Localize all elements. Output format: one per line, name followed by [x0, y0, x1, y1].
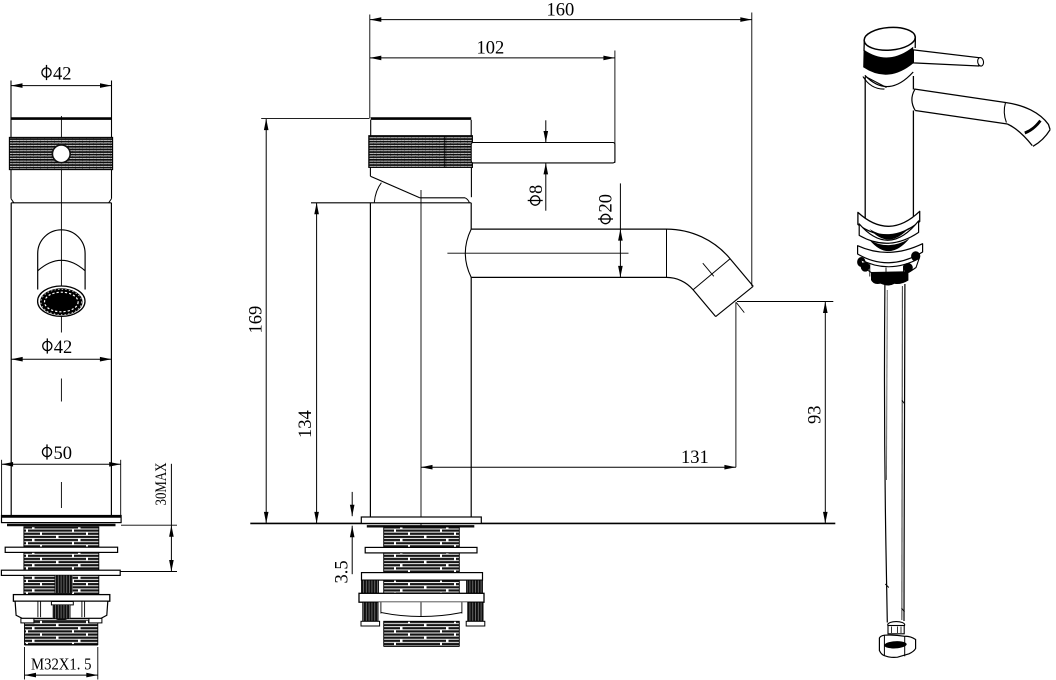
svg-text:102: 102 [477, 39, 505, 59]
svg-text:134: 134 [296, 410, 316, 438]
svg-text:160: 160 [547, 0, 575, 20]
svg-text:50: 50 [54, 444, 73, 464]
svg-text:42: 42 [54, 338, 73, 358]
svg-text:20: 20 [597, 194, 617, 213]
svg-text:169: 169 [247, 306, 267, 334]
svg-text:42: 42 [53, 64, 72, 84]
svg-text:131: 131 [681, 448, 709, 468]
svg-text:8: 8 [527, 185, 547, 194]
svg-text:M32X1. 5: M32X1. 5 [31, 655, 92, 674]
svg-text:3.5: 3.5 [332, 560, 352, 583]
svg-text:93: 93 [805, 406, 825, 425]
svg-text:30MAX: 30MAX [153, 463, 170, 506]
